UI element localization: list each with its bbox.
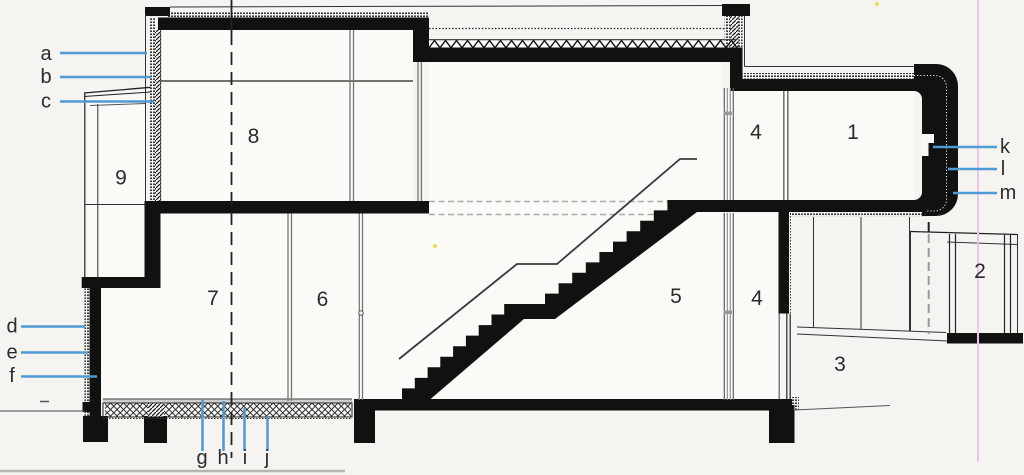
svg-text:2: 2 xyxy=(974,260,986,283)
svg-text:6: 6 xyxy=(317,288,329,311)
svg-text:c: c xyxy=(41,91,51,113)
svg-text:1: 1 xyxy=(847,121,859,144)
svg-text:h: h xyxy=(217,447,228,469)
svg-text:e: e xyxy=(6,342,17,364)
svg-text:4: 4 xyxy=(751,287,763,310)
svg-text:5: 5 xyxy=(670,285,682,308)
svg-text:a: a xyxy=(40,43,52,65)
svg-text:m: m xyxy=(1000,182,1017,204)
svg-text:4: 4 xyxy=(750,121,762,144)
svg-text:8: 8 xyxy=(248,125,260,148)
svg-text:j: j xyxy=(264,447,269,469)
svg-text:l: l xyxy=(1001,158,1005,180)
svg-text:d: d xyxy=(6,316,17,338)
svg-text:3: 3 xyxy=(834,353,846,376)
svg-text:i: i xyxy=(243,447,247,469)
svg-text:k: k xyxy=(1000,136,1011,158)
svg-text:7: 7 xyxy=(207,287,219,310)
svg-text:g: g xyxy=(196,447,207,469)
svg-text:9: 9 xyxy=(115,167,127,190)
svg-text:f: f xyxy=(9,365,15,387)
svg-text:b: b xyxy=(40,66,51,88)
